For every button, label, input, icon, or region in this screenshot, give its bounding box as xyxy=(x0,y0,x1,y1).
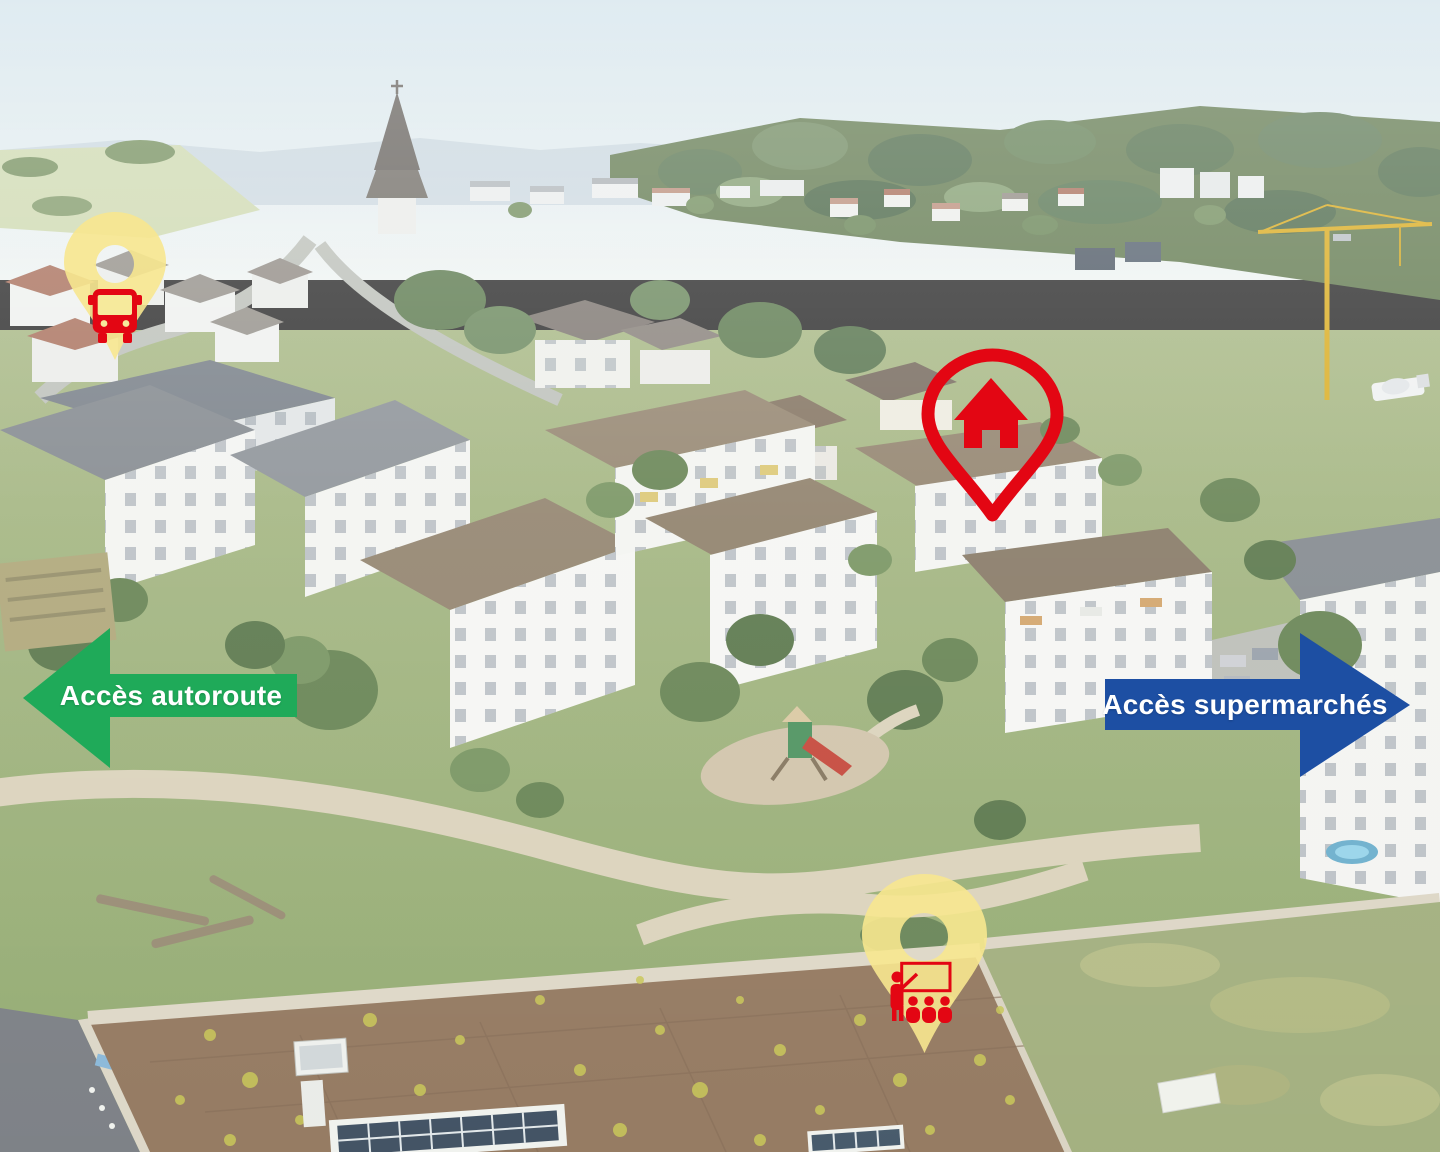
supermarket-access-arrow: Accès supermarchés xyxy=(1105,633,1415,778)
pin-shape xyxy=(64,212,166,360)
aerial-photo-background xyxy=(0,0,1440,1152)
promo-image: Accès autoroute Accès supermarchés xyxy=(0,0,1440,1152)
pin-outline xyxy=(928,355,1057,515)
white-wash xyxy=(0,0,1440,1152)
highway-access-label: Accès autoroute xyxy=(56,674,286,717)
highway-access-arrow: Accès autoroute xyxy=(0,628,300,768)
school-pin xyxy=(862,874,987,1053)
property-pin xyxy=(921,348,1064,522)
house-icon xyxy=(954,378,1028,448)
bus-stop-pin xyxy=(64,212,166,360)
supermarket-access-label: Accès supermarchés xyxy=(1111,679,1379,730)
